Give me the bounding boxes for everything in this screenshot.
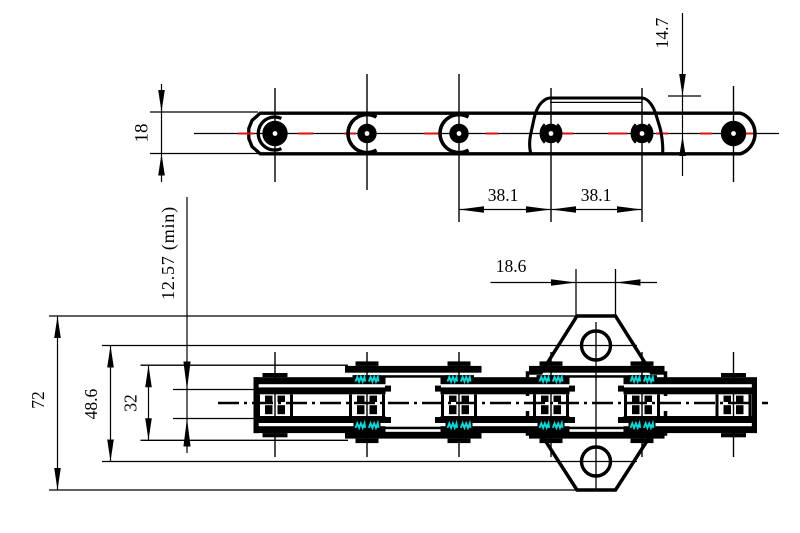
svg-text:18: 18 [132,124,153,143]
svg-text:18.6: 18.6 [496,256,527,276]
svg-text:14.7: 14.7 [652,17,672,48]
svg-text:38.1: 38.1 [488,185,519,205]
svg-text:72: 72 [28,391,48,409]
svg-text:48.6: 48.6 [81,388,101,419]
svg-text:38.1: 38.1 [581,185,612,205]
svg-text:32: 32 [121,394,141,412]
svg-text:12.57 (min): 12.57 (min) [158,206,179,300]
